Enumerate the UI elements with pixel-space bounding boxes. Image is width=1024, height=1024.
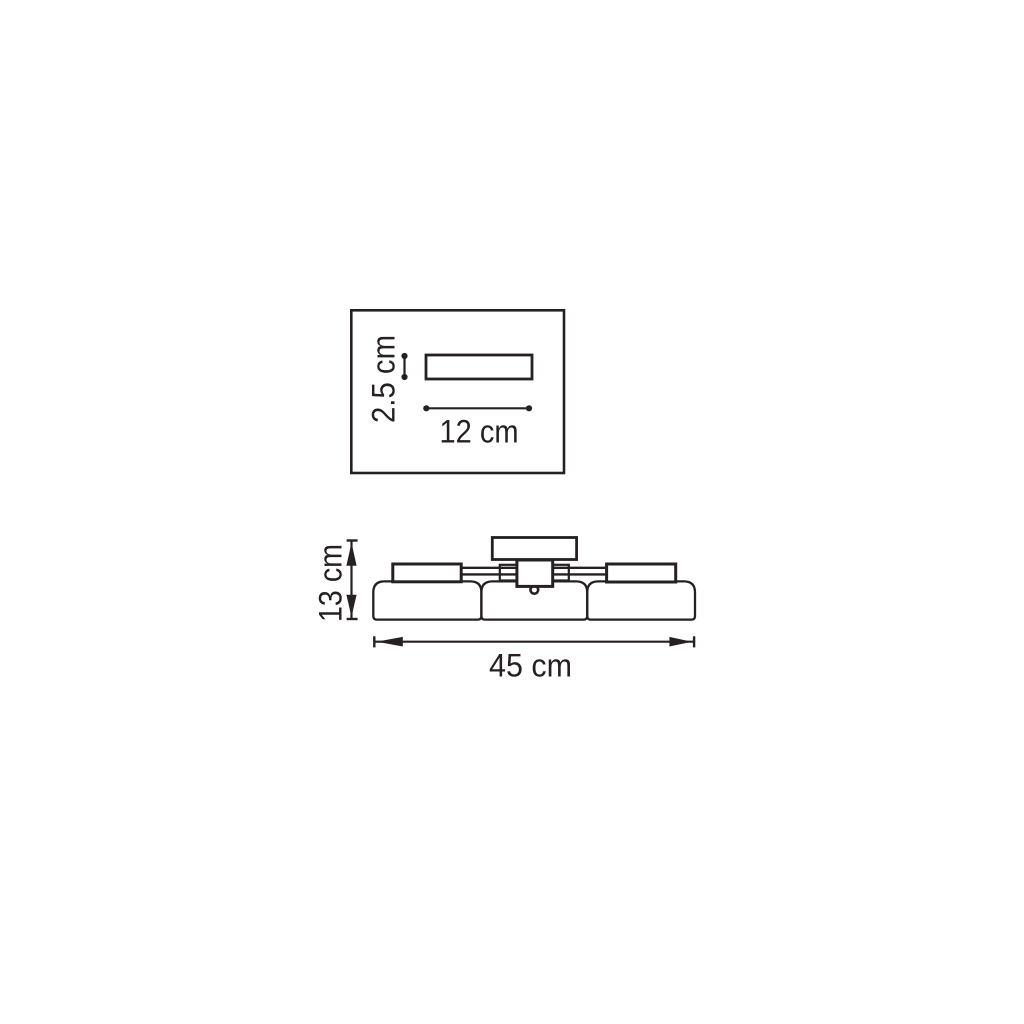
svg-text:12 cm: 12 cm xyxy=(440,413,519,449)
svg-text:45 cm: 45 cm xyxy=(489,647,572,683)
svg-text:13 cm: 13 cm xyxy=(313,544,349,622)
svg-text:2.5 cm: 2.5 cm xyxy=(366,335,402,423)
